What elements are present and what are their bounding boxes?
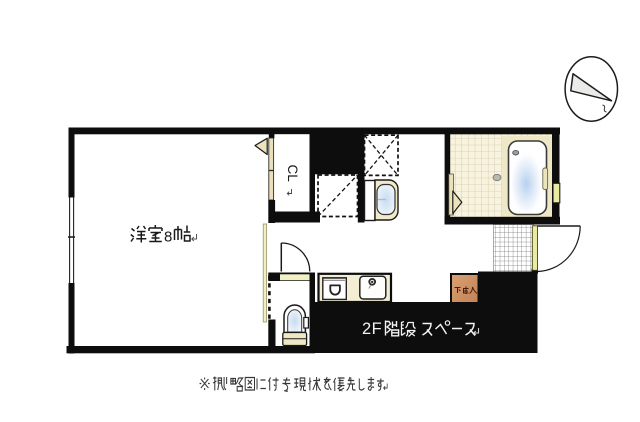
svg-text:8: 8 xyxy=(164,229,172,246)
svg-text:2F: 2F xyxy=(362,320,382,338)
svg-text:CL: CL xyxy=(285,165,300,183)
